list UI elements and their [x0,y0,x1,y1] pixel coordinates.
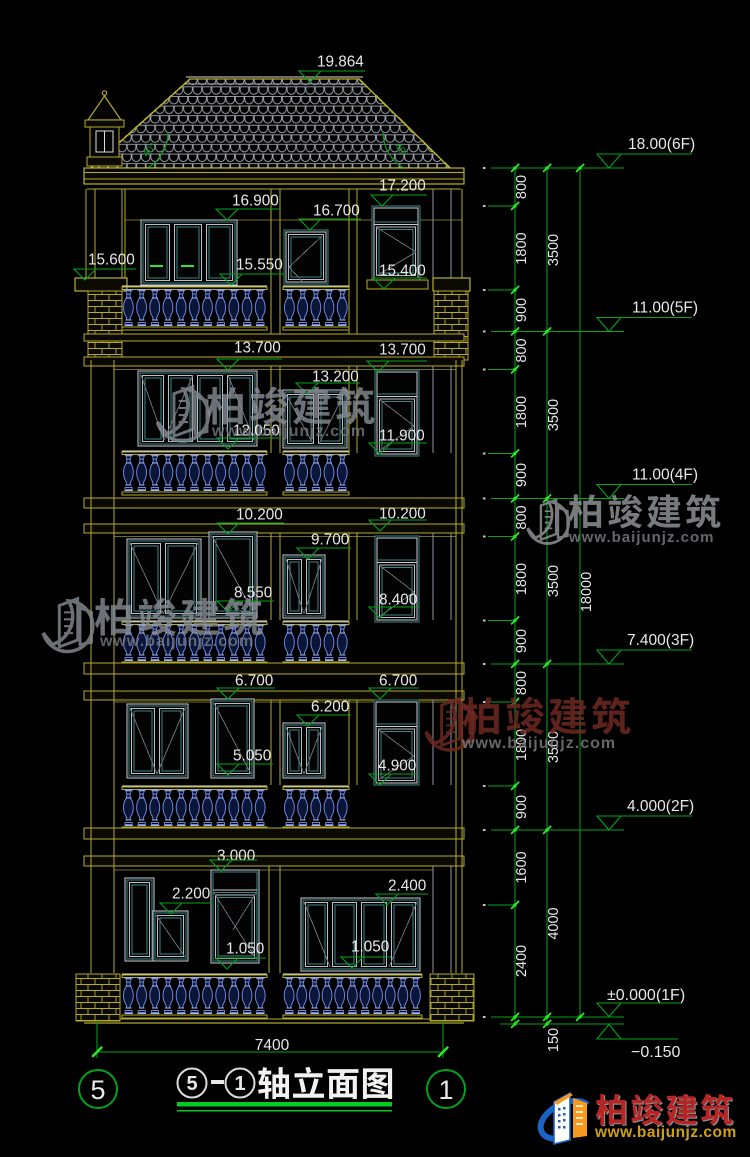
svg-text:www.baijunjz.com: www.baijunjz.com [211,423,366,440]
svg-text:6.700: 6.700 [235,673,273,690]
svg-text:1800: 1800 [514,563,530,595]
svg-text:19.864: 19.864 [317,54,364,71]
svg-text:1800: 1800 [514,232,530,264]
svg-text:900: 900 [514,298,530,322]
svg-text:15.600: 15.600 [88,252,135,269]
svg-text:15.400: 15.400 [379,263,426,280]
svg-text:3.000: 3.000 [217,848,255,865]
svg-text:3500: 3500 [546,234,562,266]
svg-text:6.700: 6.700 [379,673,417,690]
svg-text:18000: 18000 [579,572,595,612]
svg-text:4.900: 4.900 [378,758,416,775]
svg-text:www.baijunjz.com: www.baijunjz.com [594,1124,737,1141]
svg-text:8.550: 8.550 [234,585,272,602]
svg-text:1: 1 [438,1075,453,1105]
svg-text:7400: 7400 [255,1037,290,1054]
svg-text:www.baijunjz.com: www.baijunjz.com [568,529,714,546]
svg-text:5: 5 [186,1073,197,1095]
svg-text:10.200: 10.200 [236,507,283,524]
svg-text:9.700: 9.700 [311,532,349,549]
svg-text:−0.150: −0.150 [631,1044,680,1061]
svg-text:8.400: 8.400 [379,592,417,609]
svg-text:800: 800 [514,505,530,529]
svg-text:1.050: 1.050 [226,941,264,958]
svg-text:16.900: 16.900 [232,193,279,210]
svg-text:11.00(4F): 11.00(4F) [632,467,698,484]
svg-text:1600: 1600 [514,851,530,883]
svg-text:900: 900 [514,629,530,653]
svg-text:1: 1 [234,1073,245,1095]
svg-text:13.700: 13.700 [234,340,281,357]
svg-text:www.baijunjz.com: www.baijunjz.com [461,735,616,752]
svg-text:4000: 4000 [546,907,562,939]
svg-text:7.400(3F): 7.400(3F) [627,632,694,649]
svg-text:1800: 1800 [514,396,530,428]
svg-text:3500: 3500 [546,565,562,597]
svg-text:2.400: 2.400 [388,878,426,895]
svg-text:900: 900 [514,795,530,819]
svg-text:800: 800 [514,338,530,362]
svg-text:5.050: 5.050 [233,748,271,765]
svg-text:11.900: 11.900 [379,428,425,445]
svg-text:800: 800 [514,671,530,695]
svg-text:800: 800 [514,175,530,199]
svg-text:3500: 3500 [546,399,562,431]
svg-text:4.000(2F): 4.000(2F) [627,798,694,815]
svg-text:2.200: 2.200 [172,886,210,903]
svg-text:www.baijunjz.com: www.baijunjz.com [99,633,254,650]
svg-text:5: 5 [90,1075,105,1105]
svg-text:900: 900 [514,463,530,487]
svg-text:±0.000(1F): ±0.000(1F) [607,987,685,1004]
svg-text:6.200: 6.200 [311,699,349,716]
svg-text:15.550: 15.550 [236,257,283,274]
svg-text:18.00(6F): 18.00(6F) [628,136,695,153]
svg-text:13.700: 13.700 [379,342,426,359]
svg-text:16.700: 16.700 [313,203,360,220]
svg-text:1.050: 1.050 [351,939,389,956]
svg-text:2400: 2400 [514,945,530,977]
svg-text:17.200: 17.200 [379,178,426,195]
svg-text:11.00(5F): 11.00(5F) [632,300,698,317]
svg-text:150: 150 [546,1028,562,1052]
